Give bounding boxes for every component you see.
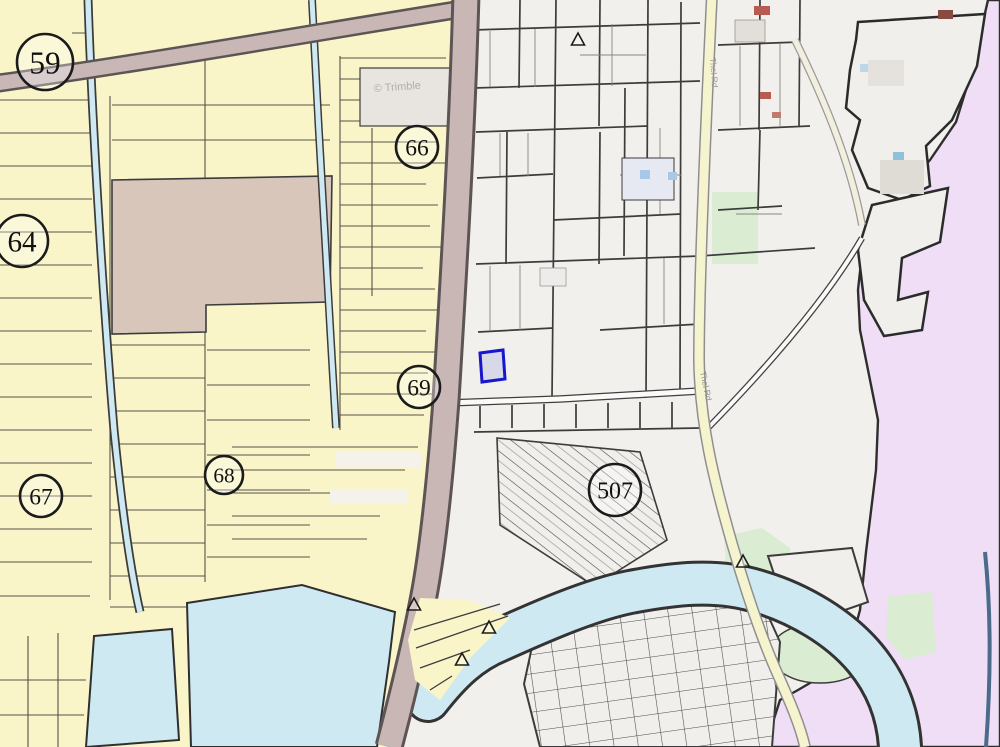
survey-number-marker[interactable]: 67 [20, 475, 62, 517]
survey-number-marker[interactable]: 64 [0, 215, 48, 267]
survey-number-marker[interactable]: 507 [589, 464, 641, 516]
survey-number-marker[interactable]: 66 [396, 126, 438, 168]
survey-number-label: 68 [213, 464, 234, 488]
survey-number-marker[interactable]: 69 [398, 366, 440, 408]
survey-number-label: 67 [29, 484, 53, 510]
survey-number-label: 64 [7, 226, 37, 258]
survey-number-label: 66 [405, 135, 429, 161]
map-canvas[interactable]: 596466676869507 © Trimble Thel Rd Thel R… [0, 0, 1000, 747]
survey-number-marker[interactable]: 68 [205, 456, 243, 494]
survey-number-label: 69 [407, 375, 431, 401]
highlighted-parcel[interactable] [480, 350, 505, 382]
light-strip [330, 490, 408, 504]
light-strip [336, 452, 422, 467]
survey-number-label: 59 [29, 45, 60, 80]
pond [187, 585, 395, 747]
gray-parcel [360, 68, 456, 126]
road-name-label: Thel Rd [708, 57, 720, 88]
pond [86, 629, 179, 747]
survey-number-marker[interactable]: 59 [17, 34, 73, 90]
survey-number-label: 507 [597, 479, 633, 505]
